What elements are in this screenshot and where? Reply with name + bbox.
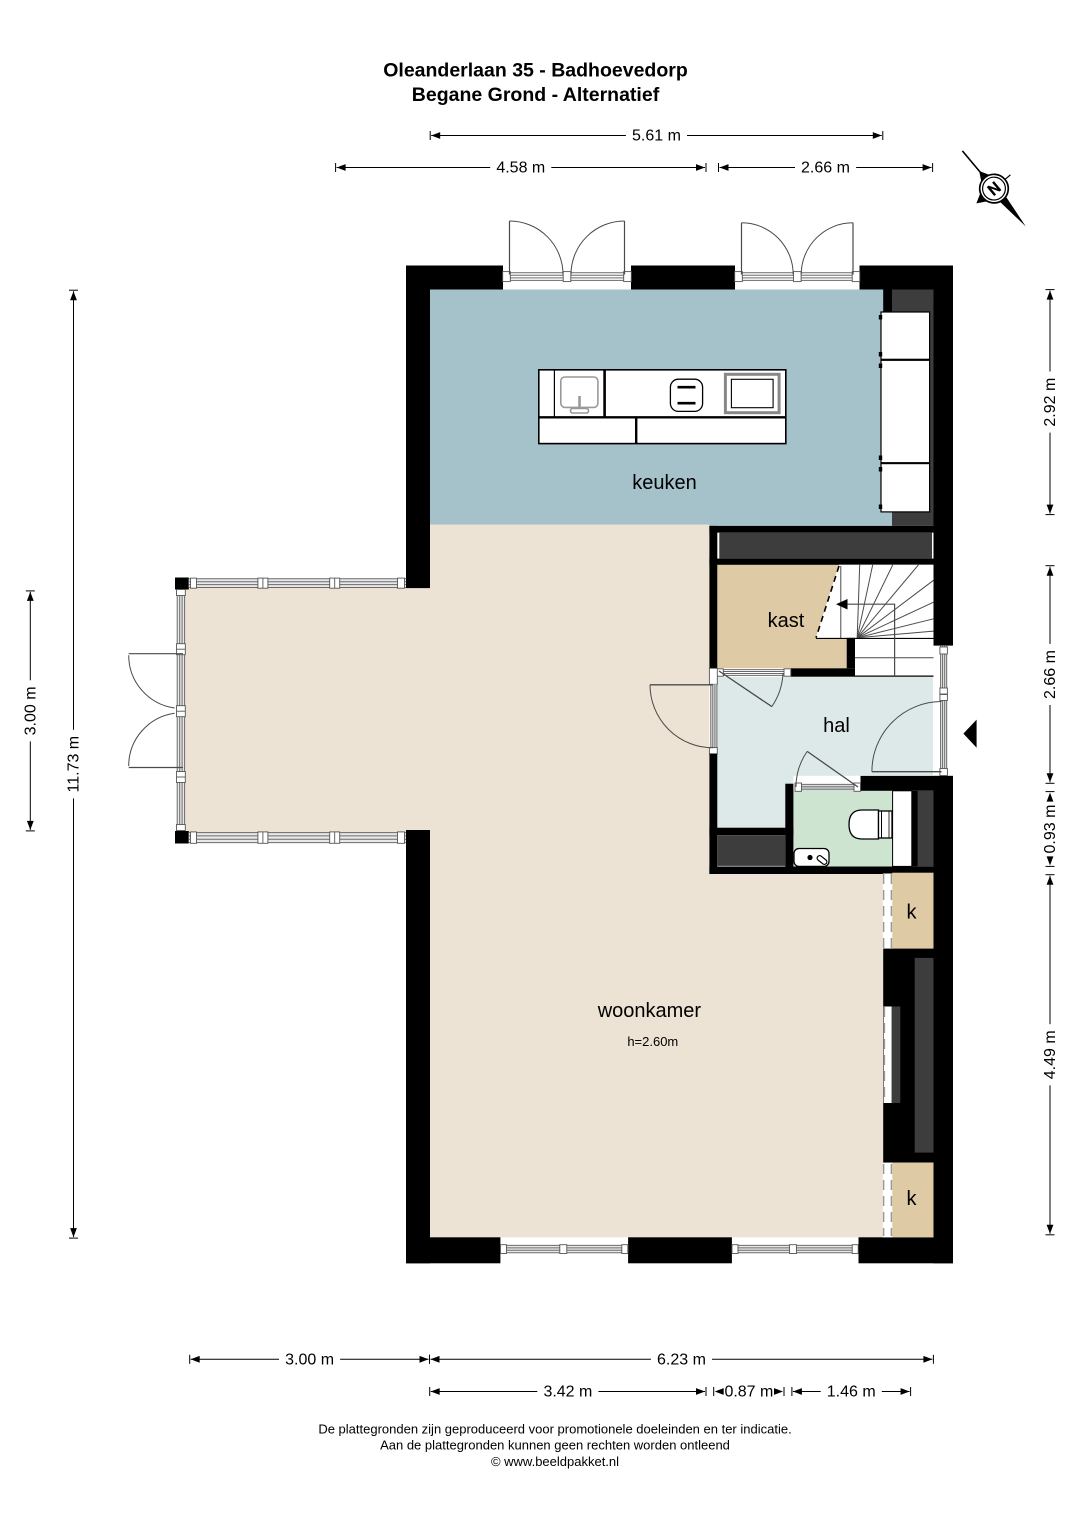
svg-text:hal: hal — [823, 715, 850, 737]
svg-text:4.58 m: 4.58 m — [496, 160, 545, 177]
svg-text:Oleanderlaan 35 - Badhoevedorp: Oleanderlaan 35 - Badhoevedorp — [383, 60, 688, 82]
svg-text:2.66 m: 2.66 m — [1042, 650, 1059, 699]
svg-text:2.92 m: 2.92 m — [1042, 378, 1059, 427]
svg-text:woonkamer: woonkamer — [597, 1000, 702, 1022]
svg-text:2.66 m: 2.66 m — [801, 160, 850, 177]
svg-text:k: k — [907, 1188, 918, 1210]
svg-text:De plattegronden zijn geproduc: De plattegronden zijn geproduceerd voor … — [318, 1421, 791, 1436]
svg-text:k: k — [907, 902, 918, 924]
svg-text:6.23 m: 6.23 m — [657, 1351, 706, 1368]
svg-text:keuken: keuken — [632, 472, 697, 494]
svg-text:h=2.60m: h=2.60m — [627, 1034, 678, 1049]
svg-text:kast: kast — [768, 610, 805, 632]
svg-text:11.73 m: 11.73 m — [66, 736, 83, 793]
svg-text:Aan de plattegronden kunnen ge: Aan de plattegronden kunnen geen rechten… — [380, 1438, 730, 1453]
svg-text:3.00 m: 3.00 m — [22, 686, 39, 735]
svg-text:0.93 m: 0.93 m — [1042, 805, 1059, 854]
svg-text:5.61 m: 5.61 m — [632, 128, 681, 145]
svg-text:© www.beeldpakket.nl: © www.beeldpakket.nl — [491, 1454, 619, 1469]
svg-text:1.46 m: 1.46 m — [827, 1384, 876, 1401]
svg-text:3.42 m: 3.42 m — [543, 1384, 592, 1401]
svg-text:Begane Grond - Alternatief: Begane Grond - Alternatief — [412, 84, 660, 106]
svg-text:3.00 m: 3.00 m — [285, 1351, 334, 1368]
svg-text:0.87 m: 0.87 m — [724, 1384, 773, 1401]
svg-text:4.49 m: 4.49 m — [1042, 1030, 1059, 1079]
